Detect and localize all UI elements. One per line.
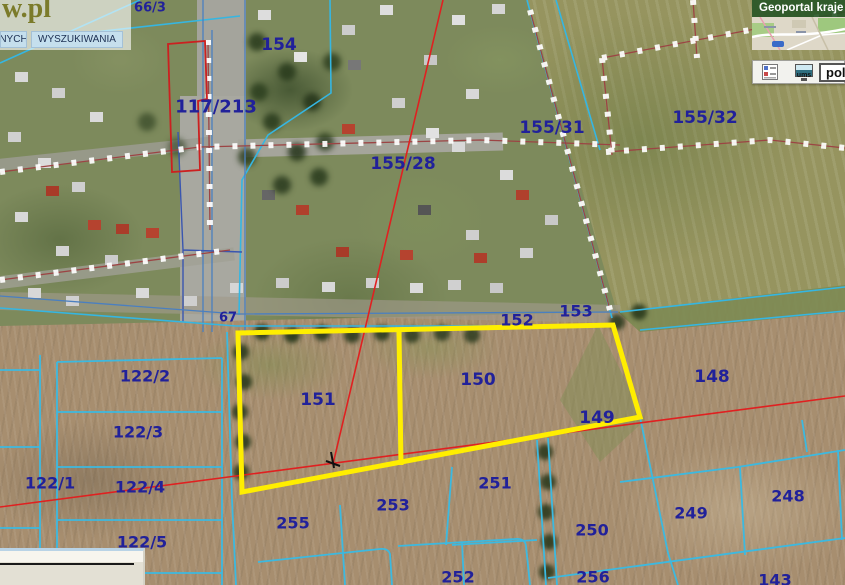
geoportal-header: Geoportal kraje bbox=[752, 0, 845, 17]
map-canvas[interactable]: 66/3154117/213155/28155/31155/3267152153… bbox=[0, 0, 845, 585]
overview-minimap[interactable] bbox=[752, 17, 845, 50]
bottom-left-panel[interactable] bbox=[0, 548, 145, 585]
site-logo: w.pl bbox=[2, 0, 51, 25]
terrain-farmland bbox=[0, 280, 845, 585]
minimap-graphic bbox=[752, 17, 845, 50]
ums-label: ums bbox=[794, 72, 814, 79]
route-shield bbox=[772, 41, 784, 47]
form-icon[interactable] bbox=[762, 64, 778, 80]
top-left-panel: w.pl NYCH WYSZUKIWANIA bbox=[0, 0, 131, 50]
geoportal-app: 66/3154117/213155/28155/31155/3267152153… bbox=[0, 0, 845, 585]
ums-monitor-icon[interactable]: ums bbox=[794, 63, 814, 82]
tab-danych[interactable]: NYCH bbox=[0, 31, 27, 48]
tab-wyszukiwania[interactable]: WYSZUKIWANIA bbox=[31, 31, 123, 48]
bottom-left-panel-line bbox=[0, 563, 134, 565]
toolbar: ums bbox=[752, 60, 845, 84]
language-input[interactable] bbox=[819, 63, 845, 82]
